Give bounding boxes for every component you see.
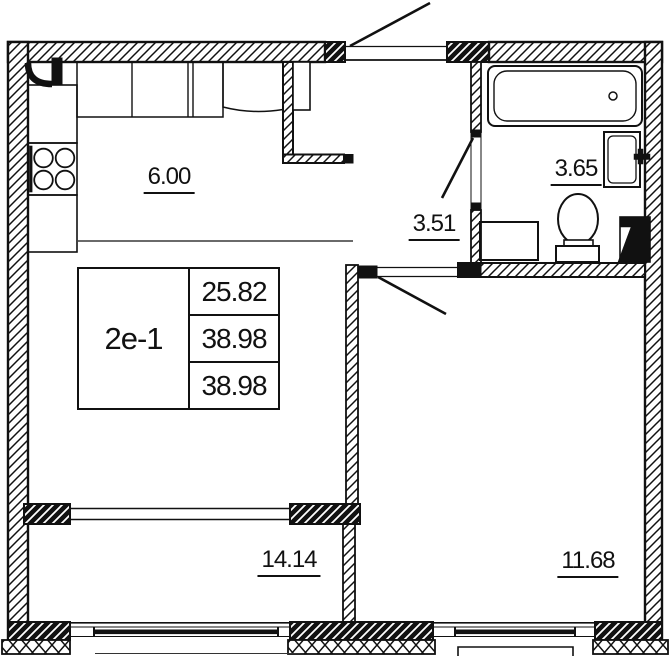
pier-left <box>8 622 70 640</box>
pier-middle <box>290 622 433 640</box>
wall-top-cap-right <box>447 42 489 62</box>
stat-total-area: 38.98 <box>190 314 278 361</box>
vent-shaft-icon <box>618 217 650 262</box>
corner-duct-icon <box>28 63 52 84</box>
kitchen-partition-vertical <box>283 62 293 156</box>
window-bedroom <box>433 623 595 637</box>
bath-wall-cap-top <box>471 130 481 137</box>
entry-door-leaf <box>350 3 430 46</box>
bathroom-door-leaf <box>442 138 473 198</box>
stove-icon <box>28 143 77 195</box>
kitchen-cabinet-upper <box>28 85 77 143</box>
entry-door <box>345 3 447 60</box>
unit-label: 2e-1 <box>79 269 190 408</box>
stat-total-area-2: 38.98 <box>190 361 278 408</box>
window-living-room <box>70 623 290 637</box>
bottom-wall <box>2 622 668 656</box>
wall-right <box>645 42 662 640</box>
stat-living-area: 25.82 <box>190 269 278 314</box>
loggia-band-block-right <box>290 504 360 524</box>
corner-duct-stub <box>52 58 62 85</box>
bath-bottom-wall <box>458 263 645 277</box>
hallway-area-label: 3.51 <box>409 212 460 241</box>
wardrobe-icon <box>293 62 310 110</box>
kitchen-area-label: 6.00 <box>144 165 195 194</box>
balcony-outline-right <box>458 647 573 656</box>
kitchen-counter <box>77 62 223 117</box>
bedroom-door-leaf <box>378 277 446 314</box>
unit-stats-column: 25.82 38.98 38.98 <box>190 269 278 408</box>
bath-wall-upper <box>471 62 481 132</box>
kitchen-partition-cap <box>344 155 353 164</box>
toilet-icon <box>556 194 599 262</box>
insulation-band-left <box>2 640 70 654</box>
room-partition-lower <box>343 522 355 624</box>
wall-left <box>8 42 28 640</box>
kitchen-partition-leg <box>283 155 344 164</box>
bedroom-area-label: 11.68 <box>557 549 618 578</box>
unit-stats-box: 2e-1 25.82 38.98 38.98 <box>77 267 280 410</box>
washing-machine-icon <box>480 222 538 260</box>
wall-top-cap-left <box>325 42 345 62</box>
insulation-band-middle <box>288 640 435 654</box>
insulation-band-right <box>593 640 668 654</box>
kitchen-cabinet-lower <box>28 195 77 252</box>
bathtub-icon <box>488 66 642 126</box>
living-room-area-label: 14.14 <box>257 548 320 577</box>
fridge-cabinet-icon <box>223 62 283 112</box>
sink-icon <box>604 132 650 187</box>
wall-top-right <box>489 42 662 62</box>
pier-right <box>595 622 662 640</box>
bathroom-area-label: 3.65 <box>551 157 602 186</box>
bath-bottom-corner <box>458 263 481 277</box>
loggia-band-block-left <box>24 504 70 524</box>
floor-plan: 6.00 3.51 3.65 14.14 11.68 2e-1 25.82 38… <box>0 0 670 656</box>
room-partition-upper <box>346 265 358 505</box>
